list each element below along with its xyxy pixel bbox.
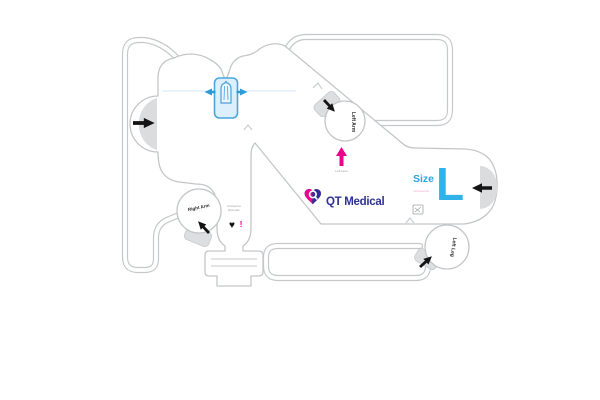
- note-line-2: Recorder: [228, 208, 240, 212]
- size-label: Size: [413, 173, 434, 185]
- symbol-icon: [413, 205, 423, 214]
- bottom-wire-loop: [266, 246, 428, 278]
- electrode-diagram-canvas: Left Arm Right Arm Left Leg Connect to R…: [0, 0, 600, 400]
- size-value: L: [436, 158, 464, 210]
- alert-icon: !: [240, 219, 243, 229]
- electrode-right-arm: Right Arm: [177, 189, 221, 248]
- brand-wordmark: QT Medical: [326, 196, 384, 208]
- heart-icon: ♥: [229, 220, 235, 231]
- left-arm-label: Left Arm: [350, 112, 356, 133]
- gown-icon: [221, 82, 231, 104]
- size-code: ~~~~~~: [413, 189, 429, 195]
- device-diagram: Left Arm Right Arm Left Leg Connect to R…: [0, 0, 600, 400]
- apex-label: Left Apex: [335, 169, 348, 173]
- electrode-left-leg: Left Leg: [413, 225, 469, 271]
